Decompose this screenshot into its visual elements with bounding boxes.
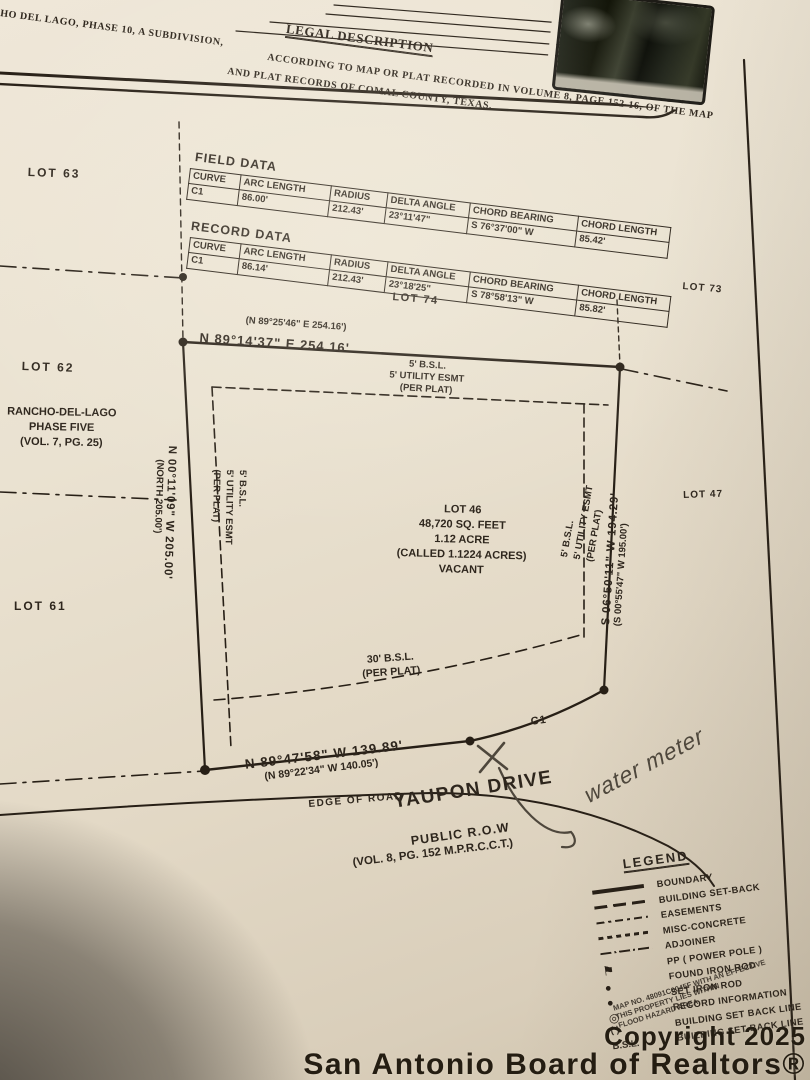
lot-62-label: LOT 62 xyxy=(22,360,75,376)
west-bearing-group: N 00°11'09" W 205.00' (NORTH 205.00') xyxy=(149,445,178,580)
easement-line-icon xyxy=(596,915,648,924)
copyright-year: Copyright 2025 xyxy=(303,1023,806,1049)
boundary-line-icon xyxy=(592,884,644,894)
easement-note-top: 5' B.S.L. 5' UTILITY ESMT (PER PLAT) xyxy=(366,356,488,399)
lot-61-label: LOT 61 xyxy=(14,600,67,614)
iron-rod-sw xyxy=(200,765,210,775)
found-iron-rod-icon xyxy=(604,976,626,991)
iron-rod-ne xyxy=(616,363,625,372)
water-meter-annotation: water meter xyxy=(578,752,710,778)
copyright-owner: San Antonio Board of Realtors® xyxy=(303,1049,806,1080)
concrete-line-icon xyxy=(598,931,650,940)
lot-info-block: LOT 46 48,720 SQ. FEET 1.12 ACRE (CALLED… xyxy=(356,500,568,580)
adjoiner-line-1 xyxy=(0,266,183,278)
iron-rod-se xyxy=(600,686,609,695)
copyright-watermark: Copyright 2025 San Antonio Board of Real… xyxy=(303,1023,806,1080)
adjoiner-subdivision-label: RANCHO-DEL-LAGO PHASE FIVE (VOL. 7, PG. … xyxy=(0,404,142,452)
adjoiner-line-2 xyxy=(0,492,176,500)
iron-rod-west-ext xyxy=(179,273,187,281)
setback-line-icon xyxy=(594,900,646,910)
iron-rod-nw xyxy=(179,338,188,347)
power-pole-icon xyxy=(602,960,624,975)
boundary-west xyxy=(183,342,205,770)
adjoiner-line-3 xyxy=(622,369,727,391)
easement-note-left: 5' B.S.L. 5' UTILITY ESMT (PER PLAT) xyxy=(209,469,249,545)
adjoiner-line-icon xyxy=(600,947,652,956)
property-photo-inset xyxy=(552,0,716,106)
curve-c1-label: C1 xyxy=(530,714,548,729)
lot-63-label: LOT 63 xyxy=(28,166,81,182)
pen-x-mark xyxy=(478,743,507,772)
bsl-left xyxy=(212,387,231,748)
adjoiner-line-4 xyxy=(0,771,205,784)
lot-47-label: LOT 47 xyxy=(683,489,723,502)
iron-rod-south-mid xyxy=(466,737,475,746)
plat-survey-photo: RANCHO DEL LAGO, PHASE 10, A SUBDIVISION… xyxy=(0,0,810,1080)
